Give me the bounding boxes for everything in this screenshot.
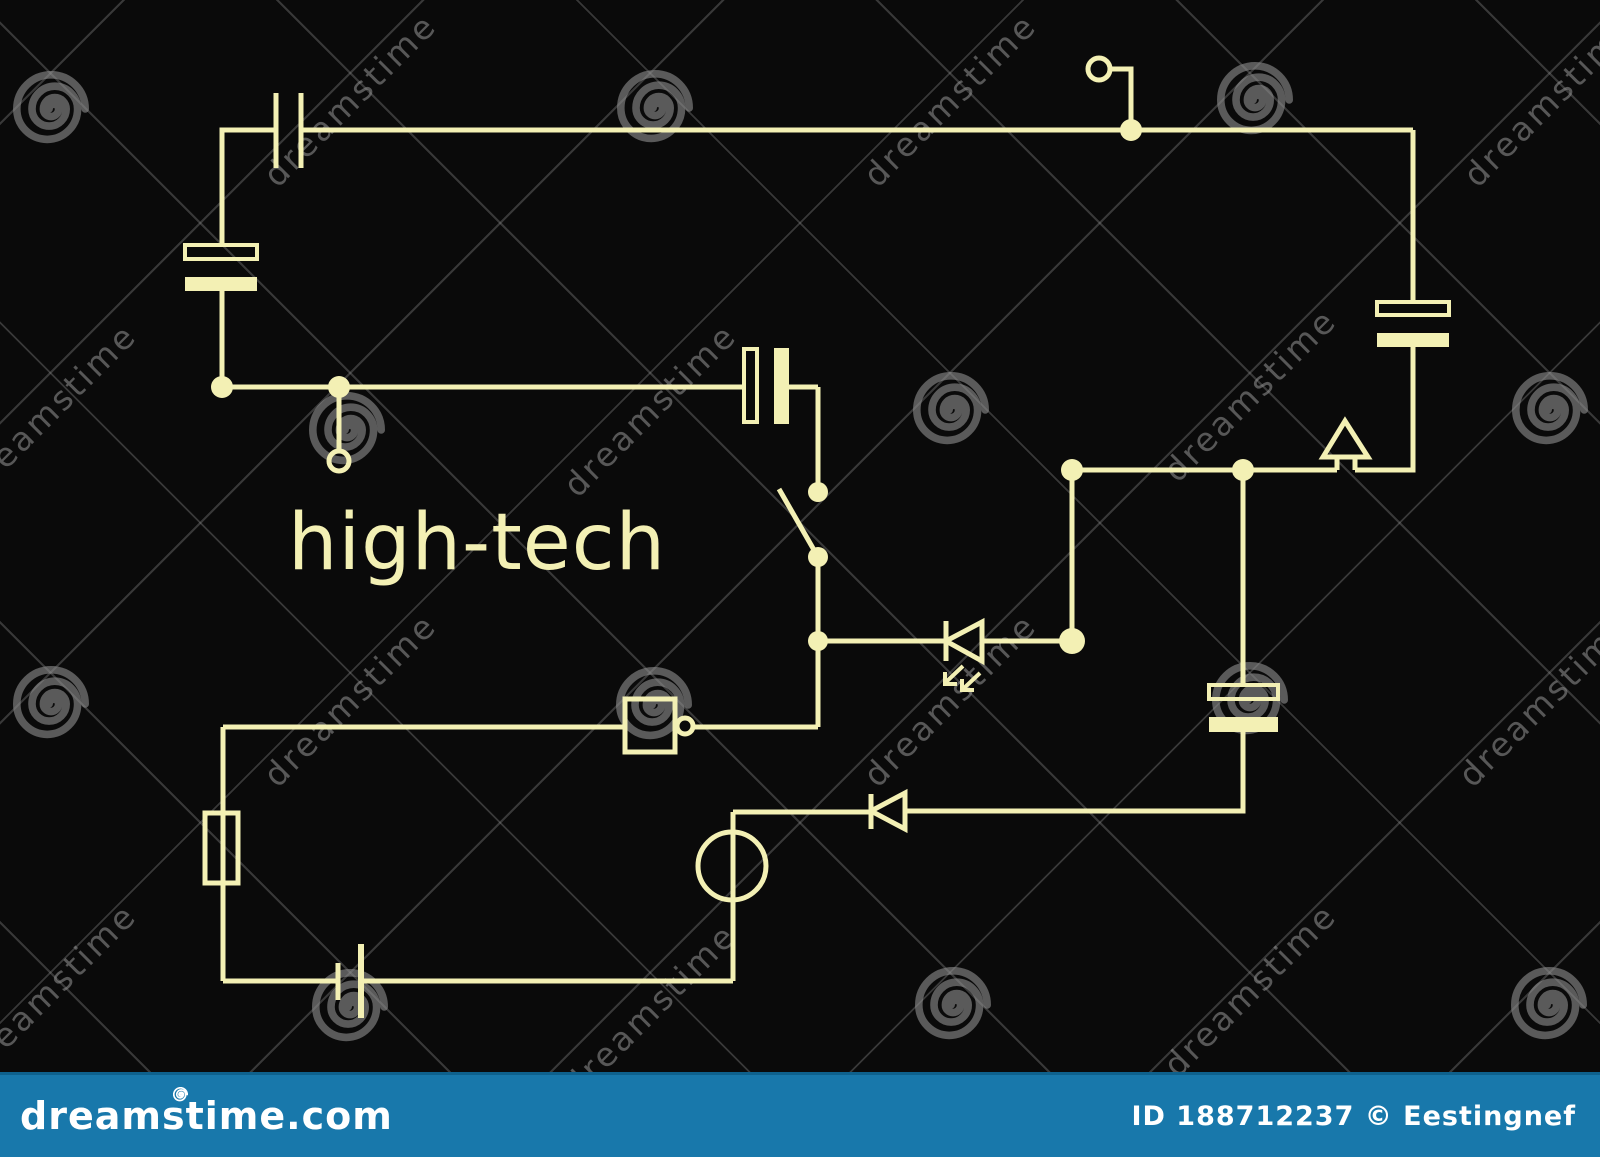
wire-middle-rail bbox=[222, 387, 818, 492]
image-title: high-tech bbox=[288, 504, 666, 582]
diode-icon bbox=[733, 732, 1243, 829]
fuse-icon bbox=[205, 727, 238, 981]
watermark-footer-bar: dreamstime.com ID 188712237 © Eestingnef bbox=[0, 1072, 1600, 1157]
dreamstime-logo: dreamstime.com bbox=[20, 1097, 393, 1135]
open-terminal-top-right-icon bbox=[1088, 58, 1131, 130]
dreamstime-logo-text: dreamstime.com bbox=[20, 1094, 393, 1138]
open-terminal-left-icon bbox=[329, 387, 349, 471]
capacitor-top-left-icon bbox=[276, 93, 301, 168]
polarized-capacitor-lower-right-icon bbox=[1209, 470, 1278, 732]
open-switch-icon bbox=[779, 489, 818, 727]
inverter-gate-icon bbox=[223, 699, 818, 752]
polarized-capacitor-right-icon bbox=[1377, 130, 1449, 347]
battery-cell-icon bbox=[223, 944, 733, 1018]
wire-top-rail bbox=[222, 130, 1413, 245]
stock-image-canvas: dreamstime dreamstime dreamstime dreamst… bbox=[0, 0, 1600, 1157]
dreamstime-logo-spiral-icon bbox=[173, 1087, 188, 1102]
polarized-capacitor-middle-icon bbox=[744, 348, 789, 424]
antenna-arrow-icon bbox=[1323, 421, 1368, 470]
circuit-diagram bbox=[0, 0, 1600, 1072]
polarized-capacitor-left-icon bbox=[185, 245, 257, 387]
led-icon bbox=[818, 470, 1072, 690]
image-credit: ID 188712237 © Eestingnef bbox=[1131, 1101, 1576, 1132]
lamp-generator-icon bbox=[698, 812, 766, 981]
